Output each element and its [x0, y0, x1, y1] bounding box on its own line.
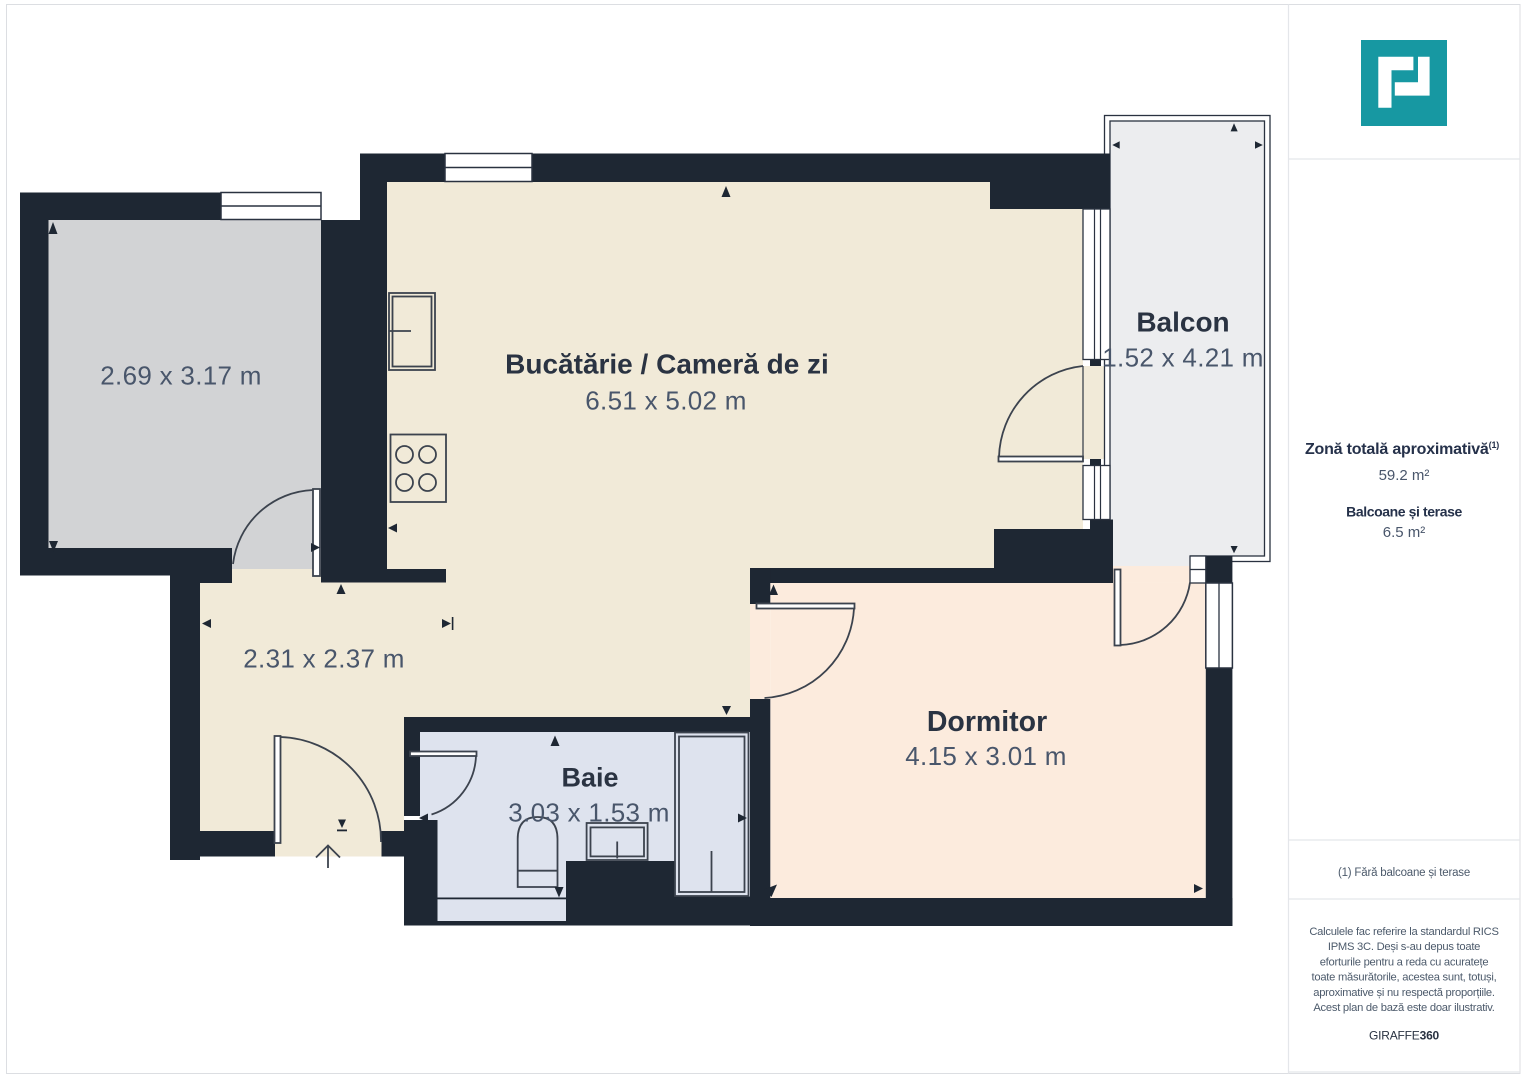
svg-text:toate măsurătorile, acestea su: toate măsurătorile, acestea sunt, totuși… [1311, 972, 1496, 984]
svg-text:IPMS 3C. Deși s-au depus toate: IPMS 3C. Deși s-au depus toate [1328, 941, 1480, 953]
svg-text:Dormitor: Dormitor [927, 706, 1047, 738]
svg-text:6.5 m²: 6.5 m² [1383, 524, 1426, 541]
svg-text:aproximative și nu respectă pr: aproximative și nu respectă proporțiile. [1313, 987, 1495, 999]
svg-text:Acest plan de bază este doar i: Acest plan de bază este doar ilustrativ. [1313, 1002, 1494, 1014]
svg-text:GIRAFFE360: GIRAFFE360 [1369, 1029, 1440, 1043]
svg-text:2.69 x 3.17 m: 2.69 x 3.17 m [100, 361, 261, 391]
svg-text:Balcoane și terase: Balcoane și terase [1346, 504, 1462, 520]
svg-text:eforturile pentru a reda cu ac: eforturile pentru a reda cu acuratețe [1320, 956, 1489, 968]
svg-text:2.31 x 2.37 m: 2.31 x 2.37 m [243, 644, 404, 674]
svg-text:3.03 x 1.53 m: 3.03 x 1.53 m [508, 798, 669, 828]
svg-text:1.52 x 4.21 m: 1.52 x 4.21 m [1102, 343, 1263, 373]
svg-text:(1) Fără balcoane și terase: (1) Fără balcoane și terase [1338, 867, 1470, 879]
svg-text:4.15 x 3.01 m: 4.15 x 3.01 m [905, 741, 1066, 771]
svg-text:Baie: Baie [561, 763, 618, 793]
svg-text:Bucătărie / Cameră de zi: Bucătărie / Cameră de zi [505, 349, 829, 380]
svg-text:59.2 m²: 59.2 m² [1379, 467, 1430, 484]
svg-text:Calculele fac referire la stan: Calculele fac referire la standardul RIC… [1309, 926, 1498, 938]
svg-text:Balcon: Balcon [1136, 307, 1229, 338]
svg-text:6.51 x 5.02 m: 6.51 x 5.02 m [585, 386, 746, 416]
svg-text:Zonă totală aproximativă(1): Zonă totală aproximativă(1) [1305, 440, 1499, 458]
